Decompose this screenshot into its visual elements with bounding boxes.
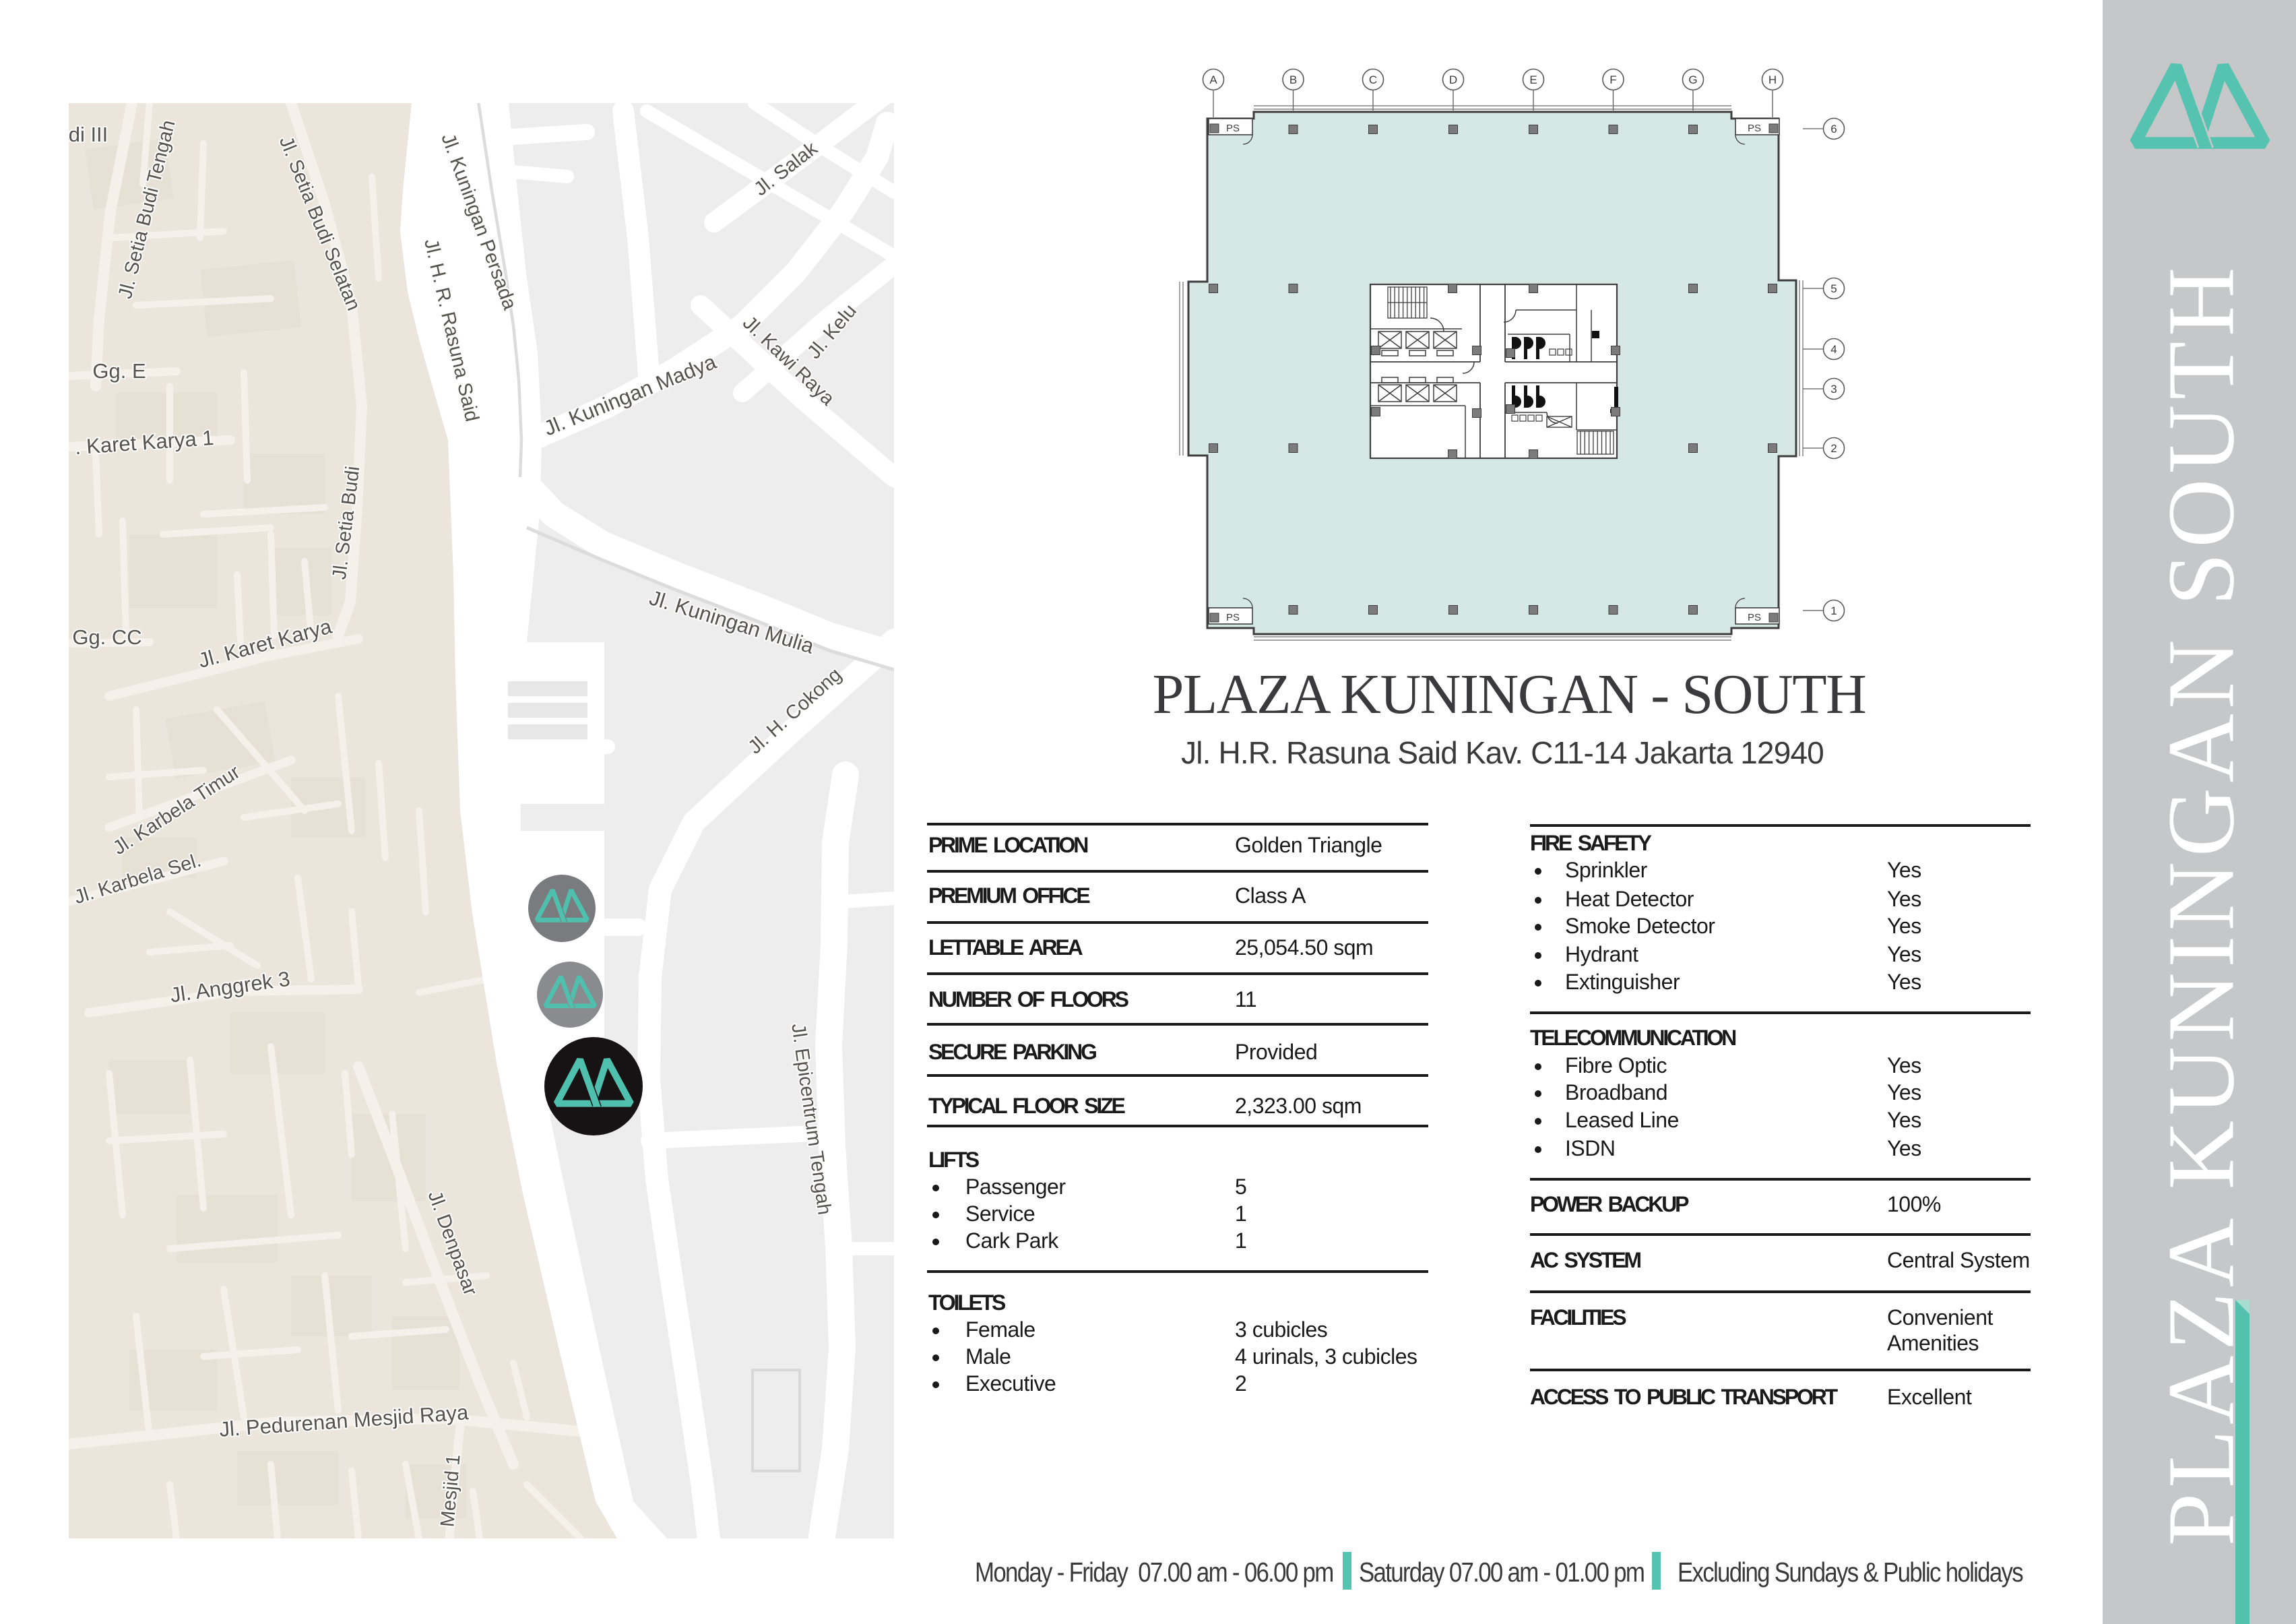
svg-text:PS: PS bbox=[1226, 123, 1240, 134]
svg-text:5: 5 bbox=[1830, 282, 1837, 295]
svg-text:2: 2 bbox=[1830, 442, 1837, 455]
svg-text:1: 1 bbox=[1830, 604, 1837, 617]
svg-text:E: E bbox=[1529, 73, 1537, 86]
svg-text:Gg. E: Gg. E bbox=[92, 359, 146, 383]
svg-text:4: 4 bbox=[1830, 343, 1837, 356]
svg-text:D: D bbox=[1449, 73, 1457, 86]
svg-text:di III: di III bbox=[69, 123, 108, 146]
svg-text:PS: PS bbox=[1226, 612, 1240, 623]
svg-text:3: 3 bbox=[1830, 383, 1837, 396]
svg-text:6: 6 bbox=[1830, 123, 1837, 135]
svg-text:B: B bbox=[1289, 73, 1297, 86]
svg-text:Gg. CC: Gg. CC bbox=[72, 625, 141, 649]
svg-text:A: A bbox=[1209, 73, 1217, 86]
svg-text:PS: PS bbox=[1748, 123, 1761, 134]
svg-text:H: H bbox=[1768, 73, 1777, 86]
svg-text:C: C bbox=[1369, 73, 1377, 86]
svg-text:G: G bbox=[1688, 73, 1697, 86]
svg-text:F: F bbox=[1609, 73, 1616, 86]
svg-text:PS: PS bbox=[1748, 612, 1761, 623]
